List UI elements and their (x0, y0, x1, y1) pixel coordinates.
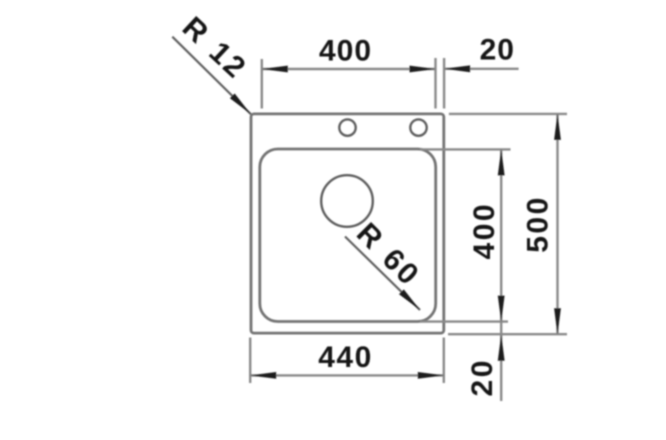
svg-text:400: 400 (468, 202, 501, 260)
svg-text:400: 400 (319, 34, 372, 67)
svg-text:20: 20 (480, 34, 515, 67)
svg-text:500: 500 (522, 195, 555, 253)
svg-text:440: 440 (318, 341, 373, 374)
svg-text:20: 20 (466, 358, 499, 396)
